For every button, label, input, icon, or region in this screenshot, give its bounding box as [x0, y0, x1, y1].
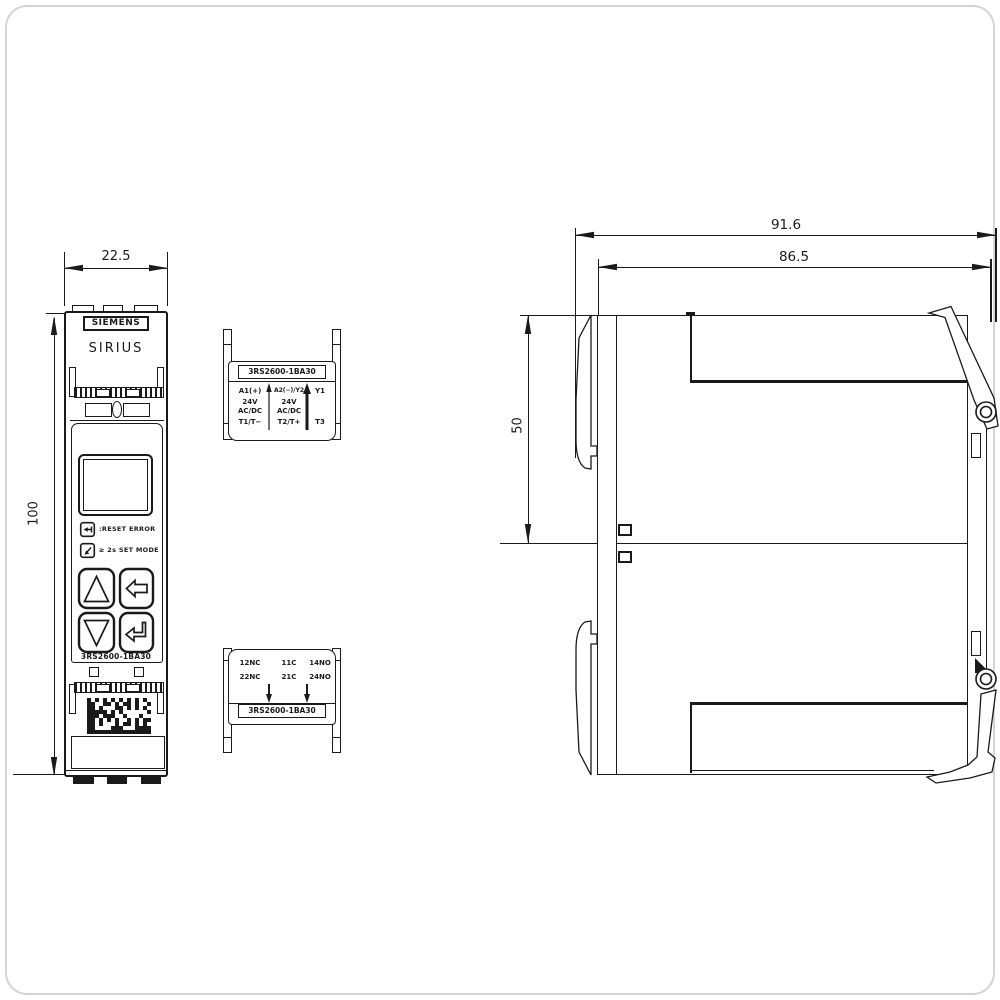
reset-icon — [81, 523, 95, 537]
dimension-arrowheads — [51, 232, 996, 776]
set-mode-icon — [81, 544, 95, 558]
front-clip-bottom — [576, 621, 597, 775]
dimensional-drawing: 22.5 100 SIEMENS SIRIUS :RESET ERROR ≥ 2… — [0, 0, 1000, 1000]
line-art-overlay — [0, 0, 1000, 1000]
front-snap-clips — [576, 315, 597, 775]
front-clip-top — [576, 315, 597, 469]
din-clip-bottom — [927, 658, 996, 783]
terminal-flow-arrows — [266, 383, 311, 703]
din-clip-top — [929, 307, 998, 430]
button-outlines — [79, 569, 153, 652]
back-arrow-button — [120, 569, 153, 608]
